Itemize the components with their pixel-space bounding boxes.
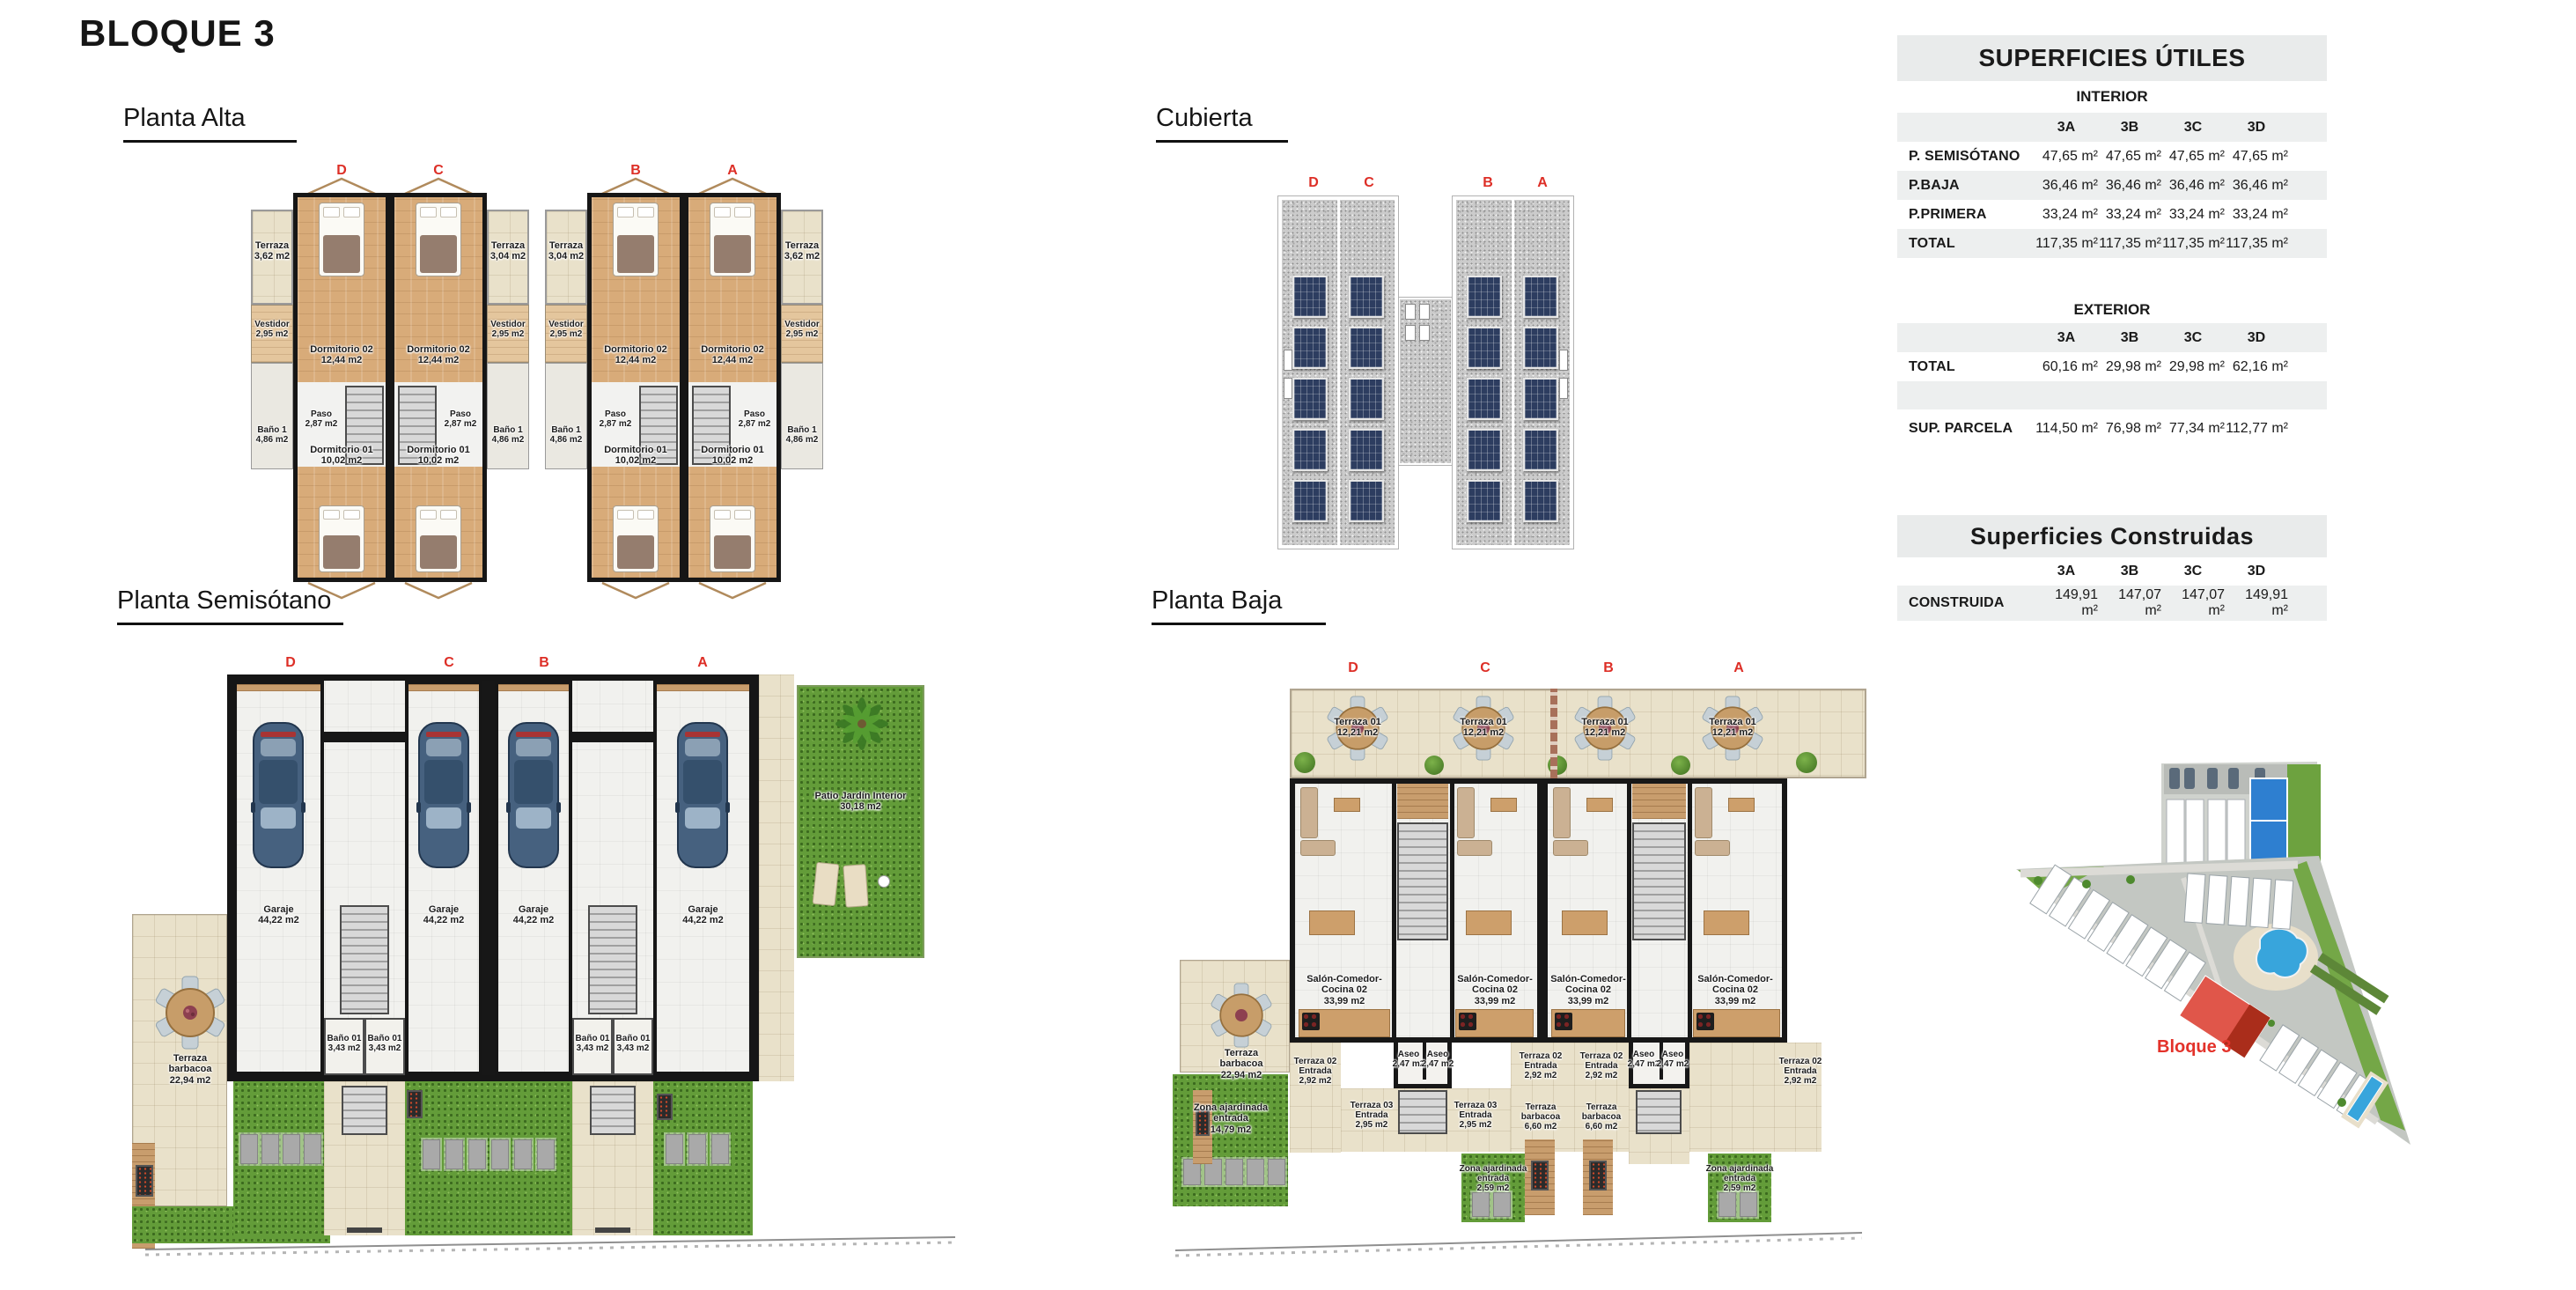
roof-ridge	[1512, 200, 1514, 545]
label-bano01: Baño 013,43 m2	[616, 1034, 651, 1053]
plant	[1424, 756, 1444, 775]
solar-panel	[1467, 276, 1502, 318]
car	[675, 721, 730, 871]
plan-planta-baja: D C B A Terraza 0112,21 m2 Terraza 0112,…	[1171, 650, 1875, 1284]
label-garaje: Garaje44,22 m2	[513, 904, 554, 926]
garden-entry	[1173, 1074, 1288, 1206]
label-terraza02: Terraza 02Entrada2,92 m2	[1520, 1051, 1563, 1081]
site-plan-label: Bloque 3	[2157, 1037, 2231, 1058]
solar-panel	[1292, 327, 1328, 369]
side-table	[878, 875, 890, 888]
boundary-line	[132, 1227, 968, 1262]
stairs	[340, 905, 389, 1014]
label-paso: Paso2,87 m2	[445, 409, 477, 429]
label-dormitorio02: Dormitorio 0212,44 m2	[604, 344, 667, 366]
bathroom-d	[251, 363, 293, 469]
label-aseo: Aseo2,47 m2	[1393, 1050, 1425, 1069]
label-salon: Salón-Comedor-Cocina 0233,99 m2	[1697, 974, 1773, 1006]
label-terraza01: Terraza 0112,21 m2	[1709, 717, 1756, 739]
roof-connector	[1398, 298, 1453, 465]
lintel	[498, 684, 569, 691]
solar-panel	[1292, 429, 1328, 471]
stairs	[1398, 1090, 1447, 1134]
stairs	[588, 905, 637, 1014]
label-terraza: Terraza3,04 m2	[490, 240, 526, 262]
label-bano1: Baño 14,86 m2	[256, 425, 289, 445]
solar-panel	[1349, 480, 1384, 522]
roof-ridge	[1337, 200, 1340, 545]
unit-letter-c: C	[444, 655, 454, 671]
label-paso: Paso2,87 m2	[305, 409, 338, 429]
unit-a	[684, 193, 781, 582]
side-path	[759, 674, 794, 1081]
row-p-baja: P.BAJA36,46 m²36,46 m²36,46 m²36,46 m²	[1897, 171, 2327, 200]
unit-letter-b: B	[1603, 660, 1614, 676]
plan-title-cubierta: Cubierta	[1156, 104, 1253, 133]
plan-semisotano: D C B A Terrazabarbacoa22,94 m2 Garaje44…	[132, 650, 968, 1280]
unit-letter-a: A	[727, 163, 738, 179]
garden	[653, 1081, 753, 1235]
bed	[416, 505, 461, 572]
bed	[319, 505, 364, 572]
unit-letter-a: A	[1537, 175, 1548, 191]
label-vestidor: Vestidor2,95 m2	[490, 320, 525, 339]
planter	[407, 1090, 423, 1118]
solar-panel	[1467, 429, 1502, 471]
solar-panel	[1523, 480, 1558, 522]
unit-letter-d: D	[1308, 175, 1319, 191]
label-salon: Salón-Comedor-Cocina 0233,99 m2	[1306, 974, 1382, 1006]
unit-letter-a: A	[697, 655, 708, 671]
unit-d	[293, 193, 390, 582]
label-salon: Salón-Comedor-Cocina 0233,99 m2	[1550, 974, 1626, 1006]
label-zona-ajardinada-259: Zona ajardinadaentrada2,59 m2	[1460, 1164, 1527, 1194]
party-wall	[482, 681, 495, 1075]
row-total-exterior: TOTAL60,16 m²29,98 m²29,98 m²62,16 m²	[1897, 352, 2327, 381]
row-p-primera: P.PRIMERA33,24 m²33,24 m²33,24 m²33,24 m…	[1897, 200, 2327, 229]
garden	[233, 1081, 324, 1235]
unit-letter-c: C	[1480, 660, 1490, 676]
label-terraza-barbacoa: Terrazabarbacoa22,94 m2	[169, 1053, 212, 1086]
barbecue-grill	[1531, 1161, 1549, 1190]
lintel	[408, 684, 479, 691]
label-zona-ajardinada-259: Zona ajardinadaentrada2,59 m2	[1706, 1164, 1774, 1194]
label-bano1: Baño 14,86 m2	[550, 425, 583, 445]
label-aseo: Aseo2,47 m2	[1657, 1050, 1689, 1069]
lintel	[657, 684, 749, 691]
roof-vent	[1284, 350, 1292, 371]
barbecue-grill	[1589, 1161, 1607, 1190]
column-header-row: 3A3B3C3D	[1897, 557, 2327, 586]
garden	[405, 1081, 572, 1235]
boundary-line	[1171, 1224, 1875, 1259]
solar-panel	[1523, 327, 1558, 369]
bed	[710, 505, 755, 572]
terrace-divider-wall	[1550, 689, 1557, 778]
solar-panel	[1349, 327, 1384, 369]
garage-c: Garaje44,22 m2	[405, 681, 482, 1075]
spacer-row	[1897, 381, 2327, 409]
garage-b: Garaje44,22 m2	[495, 681, 572, 1075]
label-vestidor: Vestidor2,95 m2	[254, 320, 289, 339]
section-interior-title: INTERIOR	[1897, 81, 2327, 113]
label-terraza02: Terraza 02Entrada2,92 m2	[1294, 1057, 1337, 1087]
round-table	[1209, 983, 1274, 1048]
label-terraza02: Terraza 02Entrada2,92 m2	[1779, 1057, 1822, 1087]
round-table	[153, 976, 227, 1050]
garage-d: Garaje44,22 m2	[233, 681, 324, 1075]
label-terraza01: Terraza 0112,21 m2	[1334, 717, 1381, 739]
entry-path	[572, 1081, 653, 1235]
row-construida: CONSTRUIDA149,91 m²147,07 m²147,07 m²149…	[1897, 586, 2327, 621]
label-salon: Salón-Comedor-Cocina 0233,99 m2	[1457, 974, 1533, 1006]
label-dormitorio01: Dormitorio 0110,02 m2	[407, 445, 470, 467]
plan-cubierta: D C B A	[1277, 170, 1646, 568]
stair-wall	[324, 732, 405, 742]
roof-chevrons	[251, 582, 823, 601]
label-paso: Paso2,87 m2	[600, 409, 632, 429]
unit-letter-c: C	[1364, 175, 1374, 191]
page-title: BLOQUE 3	[79, 12, 276, 55]
lintel	[237, 684, 320, 691]
plant	[1294, 752, 1315, 773]
unit-letter-a: A	[1733, 660, 1744, 676]
barbecue-grill	[136, 1165, 153, 1197]
solar-panel	[1349, 378, 1384, 420]
label-terraza01: Terraza 0112,21 m2	[1460, 717, 1507, 739]
stairs	[1636, 1090, 1682, 1134]
label-garaje: Garaje44,22 m2	[682, 904, 723, 926]
label-paso: Paso2,87 m2	[739, 409, 771, 429]
car	[506, 721, 561, 871]
label-garaje: Garaje44,22 m2	[423, 904, 464, 926]
label-bano01: Baño 013,43 m2	[328, 1034, 362, 1053]
label-dormitorio01: Dormitorio 0110,02 m2	[701, 445, 764, 467]
roof-block-ba	[1453, 196, 1573, 549]
label-terraza03: Terraza 03Entrada2,95 m2	[1351, 1101, 1394, 1131]
unit-letter-d: D	[1348, 660, 1358, 676]
label-bano1: Baño 14,86 m2	[492, 425, 525, 445]
wardrobe	[1397, 784, 1448, 819]
plant	[1796, 752, 1817, 773]
stair-wall	[572, 732, 653, 742]
column-header-row: 3A3B3C3D	[1897, 113, 2327, 142]
label-dormitorio01: Dormitorio 0110,02 m2	[604, 445, 667, 467]
unit-b	[587, 193, 684, 582]
label-vestidor: Vestidor2,95 m2	[548, 320, 583, 339]
row-sup-parcela: SUP. PARCELA114,50 m²76,98 m²77,34 m²112…	[1897, 409, 2327, 448]
garage-a: Garaje44,22 m2	[653, 681, 753, 1075]
bed	[710, 203, 755, 276]
patio-garden: Patio Jardín Interior30,18 m2	[797, 685, 924, 958]
solar-panel	[1292, 378, 1328, 420]
label-dormitorio02: Dormitorio 0212,44 m2	[407, 344, 470, 366]
bathroom-b	[545, 363, 587, 469]
label-terraza03: Terraza 03Entrada2,95 m2	[1454, 1101, 1498, 1131]
table-title: SUPERFICIES ÚTILES	[1897, 35, 2327, 81]
label-zona-ajardinada-14: Zona ajardinadaentrada14,79 m2	[1194, 1102, 1268, 1135]
label-bano01: Baño 013,43 m2	[368, 1034, 402, 1053]
table-superficies-construidas: Superficies Construidas 3A3B3C3D CONSTRU…	[1897, 515, 2327, 621]
bed	[613, 203, 659, 276]
solar-panel	[1349, 429, 1384, 471]
label-patio-jardin: Patio Jardín Interior30,18 m2	[815, 791, 907, 813]
car	[416, 721, 471, 871]
plan-title-baja: Planta Baja	[1152, 586, 1282, 616]
label-vestidor: Vestidor2,95 m2	[784, 320, 819, 339]
solar-panel	[1467, 480, 1502, 522]
bed	[416, 203, 461, 276]
palm-tree	[827, 689, 897, 759]
unit-letter-d: D	[285, 655, 296, 671]
label-dormitorio01: Dormitorio 0110,02 m2	[310, 445, 373, 467]
column-header-row: 3A3B3C3D	[1897, 323, 2327, 352]
label-dormitorio02: Dormitorio 0212,44 m2	[701, 344, 764, 366]
label-terraza02: Terraza 02Entrada2,92 m2	[1580, 1051, 1623, 1081]
planter	[657, 1094, 673, 1120]
solar-panel	[1523, 429, 1558, 471]
label-terraza: Terraza3,62 m2	[254, 240, 290, 262]
label-garaje: Garaje44,22 m2	[258, 904, 298, 926]
stairs	[1397, 822, 1448, 940]
label-terraza-barbacoa-6: Terrazabarbacoa6,60 m2	[1521, 1102, 1560, 1132]
label-dormitorio02: Dormitorio 0212,44 m2	[310, 344, 373, 366]
roof-block-dc	[1278, 196, 1398, 549]
label-terraza-barbacoa-6: Terrazabarbacoa6,60 m2	[1582, 1102, 1621, 1132]
label-terraza01: Terraza 0112,21 m2	[1581, 717, 1629, 739]
row-total-interior: TOTAL117,35 m²117,35 m²117,35 m²117,35 m…	[1897, 229, 2327, 258]
row-p-semisotano: P. SEMISÓTANO47,65 m²47,65 m²47,65 m²47,…	[1897, 142, 2327, 171]
bed	[613, 505, 659, 572]
section-exterior-title: EXTERIOR	[1897, 297, 2327, 323]
label-terraza-barbacoa-22: Terrazabarbacoa22,94 m2	[1220, 1048, 1263, 1080]
label-bano01: Baño 013,43 m2	[576, 1034, 610, 1053]
bed	[319, 203, 364, 276]
label-terraza: Terraza3,04 m2	[548, 240, 584, 262]
roof-vent	[1559, 350, 1568, 371]
bathroom-a	[781, 363, 823, 469]
table-title: Superficies Construidas	[1897, 515, 2327, 557]
bathroom-c	[487, 363, 529, 469]
solar-panel	[1523, 276, 1558, 318]
solar-panel	[1292, 276, 1328, 318]
label-terraza: Terraza3,62 m2	[784, 240, 820, 262]
unit-letter-d: D	[336, 163, 347, 179]
table-superficies-utiles: SUPERFICIES ÚTILES INTERIOR 3A3B3C3D P. …	[1897, 35, 2327, 448]
solar-panel	[1467, 378, 1502, 420]
ac-unit	[1405, 304, 1416, 320]
solar-panel	[1467, 327, 1502, 369]
plan-planta-alta: D C B A Terra	[251, 161, 823, 589]
solar-panel	[1292, 480, 1328, 522]
roof-vent	[1284, 378, 1292, 399]
ac-unit	[1419, 325, 1430, 341]
ac-unit	[1405, 325, 1416, 341]
plan-title-alta: Planta Alta	[123, 104, 246, 133]
stairs	[1632, 822, 1686, 940]
solar-panel	[1523, 378, 1558, 420]
label-aseo: Aseo2,47 m2	[1422, 1050, 1454, 1069]
label-bano1: Baño 14,86 m2	[786, 425, 819, 445]
unit-letter-b: B	[630, 163, 641, 179]
car	[251, 721, 305, 871]
plant	[1671, 756, 1690, 775]
wardrobe	[1632, 784, 1686, 819]
sun-lounger	[813, 862, 840, 906]
site-plan-map	[2007, 733, 2412, 1186]
label-aseo: Aseo2,47 m2	[1628, 1050, 1660, 1069]
ac-unit	[1419, 304, 1430, 320]
solar-panel	[1349, 276, 1384, 318]
sun-lounger	[843, 864, 868, 908]
unit-letter-b: B	[539, 655, 549, 671]
entry-path	[324, 1081, 405, 1235]
unit-letter-b: B	[1483, 175, 1493, 191]
roof-vent	[1559, 378, 1568, 399]
unit-letter-c: C	[433, 163, 444, 179]
unit-c	[390, 193, 487, 582]
